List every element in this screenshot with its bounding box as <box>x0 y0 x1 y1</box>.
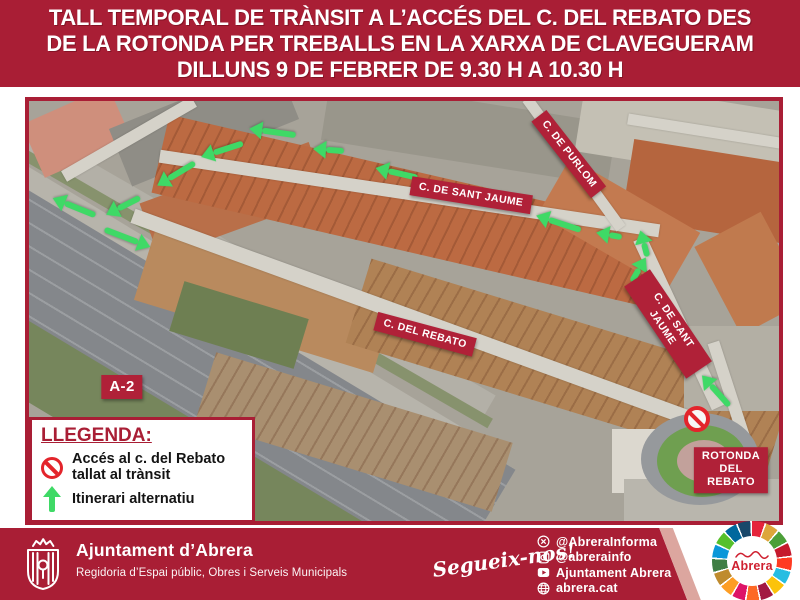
footer-band: Ajuntament d’Abrera Regidoria d’Espai pú… <box>0 528 800 600</box>
header-line-1: TALL TEMPORAL DE TRÀNSIT A L’ACCÉS DEL C… <box>0 5 800 31</box>
squiggle-icon <box>735 550 769 559</box>
social-row-youtube: Ajuntament Abrera <box>537 565 671 581</box>
social-handle: @AbreraInforma <box>556 535 657 549</box>
traffic-notice-poster: TALL TEMPORAL DE TRÀNSIT A L’ACCÉS DEL C… <box>0 0 800 600</box>
legend-item-label: Accés al c. del Rebato tallat al trànsit <box>72 452 243 484</box>
org-name: Ajuntament d’Abrera <box>76 540 347 561</box>
no-entry-icon <box>41 457 63 479</box>
social-handle: Ajuntament Abrera <box>556 566 671 580</box>
header-line-3: DILLUNS 9 DE FEBRER DE 9.30 H A 10.30 H <box>0 57 800 83</box>
instagram-icon <box>537 551 550 564</box>
x-icon <box>537 535 550 548</box>
label-rotonda-del-rebato: ROTONDA DEL REBATO <box>694 447 768 493</box>
legend-item-label: Itinerari alternatiu <box>72 492 243 508</box>
globe-icon <box>537 582 550 595</box>
youtube-icon <box>537 566 550 579</box>
road-label-a2: A-2 <box>101 375 142 399</box>
abrera-logo-text: Abrera <box>731 559 773 573</box>
social-links: @AbreraInforma @abrerainfo Ajuntament Ab… <box>537 534 671 596</box>
alternative-route-arrow <box>313 140 344 160</box>
legend-item-alt-route: Itinerari alternatiu <box>41 487 243 513</box>
social-handle: @abrerainfo <box>556 550 632 564</box>
social-handle: abrera.cat <box>556 581 618 595</box>
abrera-wheel-logo: Abrera <box>712 521 792 600</box>
aerial-map: C. DE SANT JAUMEC. DE PURLOMC. DE SANT J… <box>25 97 783 525</box>
green-arrow-icon <box>41 487 63 513</box>
abrera-wheel-center: Abrera <box>727 536 777 586</box>
no-entry-icon <box>684 406 710 432</box>
social-row-web: abrera.cat <box>537 581 671 597</box>
legend-title: LLEGENDA: <box>41 425 243 447</box>
org-department: Regidoria d’Espai públic, Obres i Servei… <box>76 567 347 579</box>
footer-org-block: Ajuntament d’Abrera Regidoria d’Espai pú… <box>76 540 347 579</box>
social-row-x: @AbreraInforma <box>537 534 671 550</box>
social-row-instagram: @abrerainfo <box>537 550 671 566</box>
abrera-coat-of-arms <box>20 537 66 593</box>
header-line-2: DE LA ROTONDA PER TREBALLS EN LA XARXA D… <box>0 31 800 57</box>
legend-item-closed-access: Accés al c. del Rebato tallat al trànsit <box>41 452 243 484</box>
legend-box: LLEGENDA: Accés al c. del Rebato tallat … <box>29 417 255 523</box>
header-banner: TALL TEMPORAL DE TRÀNSIT A L’ACCÉS DEL C… <box>0 0 800 87</box>
